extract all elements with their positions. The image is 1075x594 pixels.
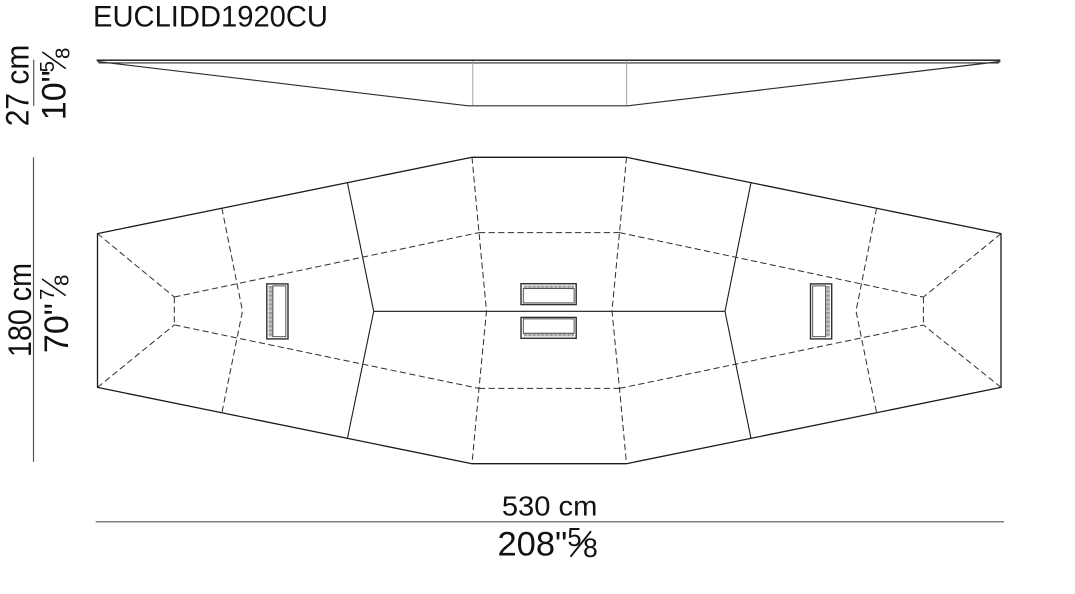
svg-text:70": 70" [38, 303, 76, 353]
svg-text:8: 8 [51, 275, 74, 286]
svg-text:EUCLIDD1920CU: EUCLIDD1920CU [93, 1, 328, 34]
svg-text:8: 8 [52, 48, 75, 59]
svg-text:27 cm: 27 cm [0, 45, 36, 127]
svg-text:7: 7 [36, 289, 59, 300]
svg-text:5: 5 [567, 524, 581, 552]
svg-text:10": 10" [35, 70, 73, 120]
svg-text:208": 208" [498, 526, 568, 564]
svg-text:5: 5 [36, 61, 59, 72]
svg-text:180 cm: 180 cm [2, 263, 38, 357]
svg-text:530 cm: 530 cm [502, 491, 598, 522]
svg-text:8: 8 [583, 533, 598, 563]
